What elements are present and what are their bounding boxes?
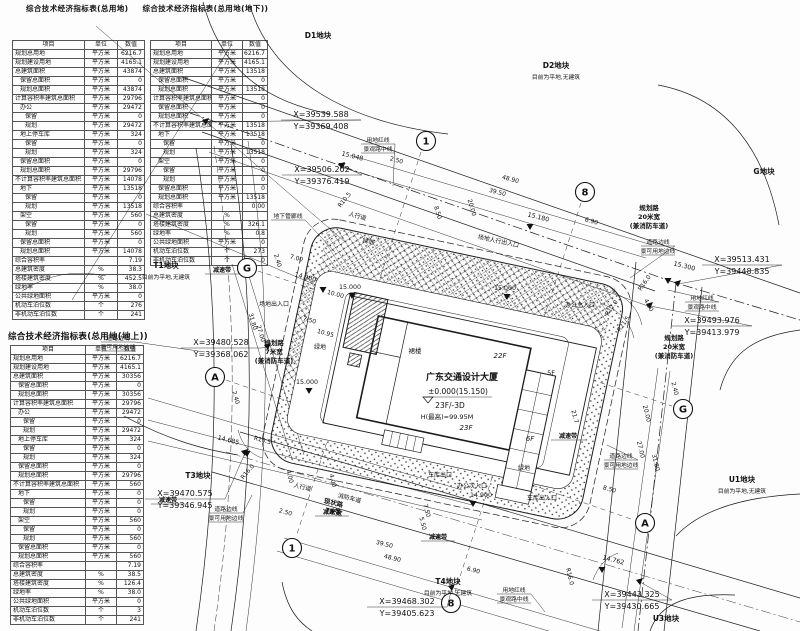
building-label: 广东交通设计大厦 <box>426 371 499 383</box>
table-row: 不计算容积率建筑总面积平方米13518 <box>151 122 268 131</box>
callout-label: 道路边线 <box>214 505 237 513</box>
plan-label: 绿地 <box>518 464 530 472</box>
table-cell: 平方米 <box>212 140 243 149</box>
table-row: 总建筑密度%38.5 <box>11 571 144 580</box>
table-row: 绿地率%38.0 <box>11 589 144 598</box>
table-cell <box>85 257 118 266</box>
table-cell: 452.5 <box>118 275 145 284</box>
table-cell: 38.3 <box>118 266 145 275</box>
axis-label: 8 <box>582 188 589 199</box>
table-row: 规划总面积平方米13518 <box>151 86 268 95</box>
callout-label: 用地红线 <box>502 586 525 594</box>
coordinate-x: X=39470.575 <box>157 489 212 498</box>
table-cell: 324 <box>118 149 145 158</box>
table-row: 非机动车泊位数个241 <box>11 616 144 625</box>
table-cell: 规划总用地 <box>151 50 212 59</box>
dimension-label: 2.50 <box>389 155 404 165</box>
table-cell: 平方米 <box>86 553 117 562</box>
axis-label: A <box>211 373 219 384</box>
table-row: 公共绿地面积平方米0 <box>11 598 144 607</box>
coord-leader <box>181 347 268 348</box>
table-row: 地上停车库平方米324 <box>13 131 145 140</box>
dimension-label: 27.00 <box>635 440 646 459</box>
table-cell: 14078 <box>118 248 145 257</box>
dimension-label: 20.00 <box>466 198 478 217</box>
table-cell: 平方米 <box>85 239 118 248</box>
dimension-label: 7.00 <box>289 253 304 263</box>
table-cell: 平方米 <box>85 104 118 113</box>
table-cell: % <box>212 230 243 239</box>
table-row: 塔楼建筑密度%326.1 <box>151 221 268 230</box>
table-cell: 0 <box>117 508 144 517</box>
table-cell: % <box>86 571 117 580</box>
table-cell: 机动车泊位数 <box>13 302 85 311</box>
table-row: 架空平方米560 <box>13 212 145 221</box>
elevation-label: 14.900 <box>294 271 317 283</box>
column-header: 数值 <box>117 346 144 355</box>
table-cell: 4165.1 <box>118 59 145 68</box>
block-label: U3地块 <box>653 613 680 623</box>
table-cell: 办公 <box>13 104 85 113</box>
table-cell: 276 <box>118 302 145 311</box>
table-cell: 个 <box>85 302 118 311</box>
table-cell: 保留 <box>13 194 85 203</box>
table-cell: 规划总面积 <box>11 391 86 400</box>
dimension-label: 2.50 <box>278 507 293 517</box>
dimension-label: 48.90 <box>383 553 402 564</box>
table-cell: 0 <box>117 418 144 427</box>
table-row: 规划总面积平方米29796 <box>13 167 145 176</box>
table-cell: 平方米 <box>212 50 243 59</box>
table-cell: 平方米 <box>86 463 117 472</box>
table-cell: 规划 <box>151 149 212 158</box>
parcel-outline <box>266 223 627 524</box>
table-cell: 保留总面积 <box>151 77 212 86</box>
plan-label: 绿地 <box>362 236 376 247</box>
table-cell: 综合容积率 <box>11 562 86 571</box>
garage-ramp-2 <box>495 484 531 504</box>
table-cell: 平方米 <box>212 185 243 194</box>
table-cell: 规划 <box>13 203 85 212</box>
dimension-label: 39.50 <box>375 539 394 550</box>
column-header: 单位 <box>85 41 118 50</box>
table-cell: 平方米 <box>85 131 118 140</box>
dimension-label: 4.00 <box>284 469 294 484</box>
block-label: U1地块 <box>729 474 756 484</box>
block-sublabel: 目前为平地,无建筑 <box>532 73 580 81</box>
callout-leader <box>607 445 638 460</box>
table-cell: 个 <box>86 607 117 616</box>
table-row: 绿地率%38.0 <box>13 284 145 293</box>
table-cell: 29796 <box>118 167 145 176</box>
tower-hatch-block <box>343 293 388 355</box>
table-cell: 地上停车库 <box>13 131 85 140</box>
dimension-label: R12.0 <box>604 299 620 318</box>
table-cell: 29472 <box>118 104 145 113</box>
table-cell: 38.5 <box>117 571 144 580</box>
axis-bubble <box>283 539 302 558</box>
dimension-label: 39.50 <box>488 187 507 198</box>
table-cell: 平方米 <box>85 122 118 131</box>
garage-ramp <box>382 430 424 453</box>
table-cell: 保留总面积 <box>13 158 85 167</box>
table-cell: 560 <box>118 212 145 221</box>
callout-leader <box>393 144 395 186</box>
table-cell: 平方米 <box>85 140 118 149</box>
title-total-land: 综合技术经济指标表(总用地) <box>26 4 128 13</box>
elevation-label: 14.900 <box>470 492 492 499</box>
table-cell: 规划 <box>13 149 85 158</box>
table-row: 保留平方米0 <box>13 140 145 149</box>
table-cell: 241 <box>118 311 145 320</box>
table-cell: 平方米 <box>212 149 243 158</box>
table-cell: 地下 <box>151 131 212 140</box>
table-row: 规划建设用地平方米4165.1 <box>11 364 144 373</box>
table-row: 保留平方米0 <box>151 140 268 149</box>
table-cell: 29472 <box>117 409 144 418</box>
table-cell: 29472 <box>118 122 145 131</box>
table-cell: 总建筑面积 <box>151 68 212 77</box>
dimension-label: R10.5 <box>253 435 272 446</box>
coord-marker <box>241 449 248 456</box>
table-cell: 平方米 <box>85 221 118 230</box>
table-cell: 平方米 <box>212 77 243 86</box>
table-cell: 规划总面积 <box>151 194 212 203</box>
table-cell: 规划总面积 <box>11 553 86 562</box>
column-header: 单位 <box>212 41 243 50</box>
table-cell: 0 <box>243 104 268 113</box>
table-cell: % <box>85 275 118 284</box>
building-label: 5F <box>547 369 555 377</box>
table-row: 保留总面积平方米0 <box>13 158 145 167</box>
table-cell: 非机动车泊位数 <box>151 257 212 266</box>
table-cell: 13518 <box>243 122 268 131</box>
table-cell: 平方米 <box>212 59 243 68</box>
coordinate-y: Y=39369.408 <box>293 122 349 131</box>
table-row: 规划总面积平方米13518 <box>151 194 268 203</box>
table-cell: 公共绿地面积 <box>151 239 212 248</box>
table-cell: 平方米 <box>212 68 243 77</box>
plaza-hatch <box>317 226 615 338</box>
table-cell: 29472 <box>117 427 144 436</box>
coord-leader <box>282 166 362 175</box>
table-row: 不计算容积率建筑总面积平方米14078 <box>13 176 145 185</box>
table-cell: 平方米 <box>85 68 118 77</box>
table-cell: 平方米 <box>86 355 117 364</box>
callout-leader <box>305 220 335 252</box>
table-cell: 非机动车泊位数 <box>13 311 85 320</box>
table-cell: 总建筑面积 <box>13 68 85 77</box>
dimension-label: 2.40 <box>272 253 282 268</box>
road-label: 7米宽 <box>324 505 344 518</box>
table-cell: 0 <box>118 194 145 203</box>
table-cell: 0 <box>118 221 145 230</box>
table-cell: 126.4 <box>117 580 144 589</box>
table-cell: 塔楼建筑密度 <box>11 580 86 589</box>
dimension-label: 10.00 <box>326 289 345 300</box>
table-cell: 0 <box>243 257 268 266</box>
callout-label: 用地红线 <box>366 136 389 144</box>
table-cell: 平方米 <box>86 436 117 445</box>
table-cell: 规划 <box>11 454 86 463</box>
table-cell: 平方米 <box>85 59 118 68</box>
coord-marker <box>646 302 653 309</box>
table-cell: 560 <box>117 535 144 544</box>
plan-label: 车库出口 <box>428 471 452 479</box>
table-row: 规划总面积平方米14078 <box>13 248 145 257</box>
table-cell: 地下 <box>11 490 86 499</box>
table-cell: 平方米 <box>212 167 243 176</box>
table-cell: 平方米 <box>86 481 117 490</box>
table-cell: 平方米 <box>85 95 118 104</box>
dimension-label: R16.0 <box>637 274 653 293</box>
table-cell: 0 <box>117 445 144 454</box>
elevation-marker <box>527 224 534 230</box>
table-cell: 计算容积率建筑总面积 <box>13 95 85 104</box>
table-cell: 0 <box>243 113 268 122</box>
column-header: 项目 <box>151 41 212 50</box>
table-row: 规划建设用地平方米4165.1 <box>13 59 145 68</box>
table-cell: 0 <box>117 463 144 472</box>
table-row: 机动车泊位数个3 <box>11 607 144 616</box>
table-row: 架空平方米0 <box>151 158 268 167</box>
table-row: 保留平方米0 <box>11 499 144 508</box>
table-row: 保留平方米0 <box>13 194 145 203</box>
ring-road-inner <box>319 291 570 469</box>
table-cell: 13518 <box>243 149 268 158</box>
elevation-label: 15.048 <box>341 150 364 162</box>
table-cell: 平方米 <box>86 364 117 373</box>
table-cell: 6216.7 <box>117 355 144 364</box>
table-cell: 324 <box>118 131 145 140</box>
block-label: G地块 <box>753 166 775 176</box>
table-cell: 平方米 <box>85 86 118 95</box>
indicator-table: 项目单位数值规划总用地平方米6216.7规划建设用地平方米4165.1总建筑面积… <box>150 40 268 266</box>
table-cell: 0 <box>243 185 268 194</box>
road-network <box>182 77 800 631</box>
road-label: (兼消防车道) <box>655 351 693 360</box>
table-cell: 0 <box>117 544 144 553</box>
table-row: 规划总面积平方米30356 <box>11 391 144 400</box>
table-row: 总建筑面积平方米13518 <box>151 68 268 77</box>
table-cell: 保留 <box>13 140 85 149</box>
site-plan-page: 综合技术经济指标表(总用地)综合技术经济指标表(总用地(地下)) 项目单位数值规… <box>0 0 800 631</box>
table-cell: 不计算容积率建筑总面积 <box>151 122 212 131</box>
table-cell: 平方米 <box>85 158 118 167</box>
road-label: 20米宽 <box>663 342 686 351</box>
dimension-label: 7.50 <box>421 503 431 518</box>
plan-label: 消防车道 <box>337 491 362 505</box>
table-cell: 总建筑面积 <box>11 373 86 382</box>
table-cell: 计算容积率建筑总面积 <box>151 95 212 104</box>
table-cell: 个 <box>212 257 243 266</box>
elevation-marker <box>470 501 477 507</box>
column-header: 项目 <box>13 41 85 50</box>
table-cell: 规划建设用地 <box>11 364 86 373</box>
table-cell <box>212 203 243 212</box>
table-cell: 综合容积率 <box>13 257 85 266</box>
table-cell: 平方米 <box>86 526 117 535</box>
table-row: 非机动车泊位数个241 <box>13 311 145 320</box>
callout-leader <box>531 594 545 612</box>
table-row: 保留平方米0 <box>11 526 144 535</box>
table-cell: 6216.7 <box>243 50 268 59</box>
callout-label: 景观路中线 <box>364 145 393 153</box>
table-cell: 7.19 <box>118 257 145 266</box>
block-sublabel: 目前为平地,无建筑 <box>718 487 766 495</box>
table-cell: 平方米 <box>86 427 117 436</box>
coordinate-y: Y=39413.979 <box>684 328 740 337</box>
table-cell: 平方米 <box>85 113 118 122</box>
table-row: 保留总面积平方米0 <box>151 77 268 86</box>
indicator-table: 项目单位数值规划总用地平方米6216.7规划建设用地平方米4165.1总建筑面积… <box>10 345 144 625</box>
table-cell: 0 <box>117 526 144 535</box>
coordinate-x: X=39468.302 <box>379 597 434 606</box>
table-row: 总建筑面积平方米43874 <box>13 68 145 77</box>
table-cell: 塔楼建筑密度 <box>151 221 212 230</box>
building-label: 裙楼 <box>409 346 423 355</box>
axis-bubble <box>576 183 595 202</box>
elevation-label: 15.300 <box>673 260 696 272</box>
table-cell: 0.8 <box>243 230 268 239</box>
coord-marker <box>264 343 271 350</box>
table-cell: 总建筑密度 <box>13 266 85 275</box>
table-row: 规划总面积平方米29796 <box>11 472 144 481</box>
table-cell: 平方米 <box>212 176 243 185</box>
elevation-marker <box>244 451 251 457</box>
table-cell: 个 <box>86 616 117 625</box>
table-cell: 平方米 <box>212 194 243 203</box>
table-cell: 规划 <box>13 230 85 239</box>
table-cell: 平方米 <box>86 400 117 409</box>
block-label: T4地块 <box>435 576 461 586</box>
table-row: 办公平方米29472 <box>11 409 144 418</box>
table-cell: 保留总面积 <box>11 463 86 472</box>
indicator-table-total: 项目单位数值规划总用地平方米6216.7规划建设用地平方米4165.1总建筑面积… <box>12 40 145 320</box>
west-hatch <box>284 270 350 387</box>
plan-label: 车库出入口 <box>527 494 557 502</box>
table-cell: 绿地率 <box>151 230 212 239</box>
building-label: 23F/-3D <box>435 401 465 410</box>
table-row: 规划平方米13518 <box>151 149 268 158</box>
table-cell: 公共绿地面积 <box>13 293 85 302</box>
coordinate-y: Y=39376.419 <box>294 177 350 186</box>
table-row: 规划平方米0 <box>151 176 268 185</box>
table-cell: 地下 <box>13 185 85 194</box>
table-cell: 13518 <box>243 68 268 77</box>
table-cell: 规划 <box>11 508 86 517</box>
table-cell: 保留 <box>151 167 212 176</box>
table-row: 机动车泊位数个273 <box>151 248 268 257</box>
table-cell: 平方米 <box>85 212 118 221</box>
table-cell: 30356 <box>117 391 144 400</box>
table-row: 综合容积率7.19 <box>11 562 144 571</box>
table-cell: 规划 <box>13 122 85 131</box>
plan-label: 人行道 <box>348 210 367 222</box>
table-cell: 平方米 <box>212 158 243 167</box>
dimension-label: 8.50 <box>432 205 442 220</box>
table-cell: 平方米 <box>86 598 117 607</box>
elevation-marker <box>339 163 346 169</box>
table-cell: 平方米 <box>86 544 117 553</box>
table-row: 架空平方米560 <box>11 517 144 526</box>
building-label: ±0.000(15.150) <box>428 387 488 396</box>
elevation-label: 15.000 <box>494 285 516 292</box>
callout-label: 减速带 <box>159 496 177 504</box>
table-cell: 非机动车泊位数 <box>11 616 86 625</box>
table-cell: 326.1 <box>243 221 268 230</box>
road-label: 现状路 <box>323 496 345 509</box>
table-cell: 平方米 <box>85 293 118 302</box>
table-cell: 个 <box>85 311 118 320</box>
block-sublabel: 目前为平地,无建筑 <box>424 589 472 597</box>
callout-label: 景观路中线 <box>500 595 529 603</box>
road-label: 规划路 <box>664 333 684 342</box>
table-cell: 0 <box>118 158 145 167</box>
table-cell: 保留总面积 <box>151 104 212 113</box>
callout-label: 景可用地边线 <box>209 514 244 522</box>
table-cell: 保留 <box>13 221 85 230</box>
table-cell: 平方米 <box>85 77 118 86</box>
table-cell: 0 <box>243 95 268 104</box>
table-cell: 平方米 <box>85 149 118 158</box>
column-header: 项目 <box>11 346 86 355</box>
table-cell: 保留 <box>13 113 85 122</box>
axis-label: A <box>641 519 649 530</box>
table-row: 规划总用地平方米6216.7 <box>11 355 144 364</box>
table-cell: 平方米 <box>85 194 118 203</box>
building-label: 22F <box>494 352 508 360</box>
table-row: 规划总用地平方米6216.7 <box>13 50 145 59</box>
column-header: 数值 <box>243 41 268 50</box>
coord-marker <box>674 280 681 287</box>
table-cell: 架空 <box>13 212 85 221</box>
table-cell <box>86 562 117 571</box>
table-cell: % <box>85 266 118 275</box>
table-row: 规划平方米0 <box>11 508 144 517</box>
table-cell: 13518 <box>243 131 268 140</box>
table-row: 总建筑密度% <box>151 212 268 221</box>
table-row: 综合容积率7.19 <box>13 257 145 266</box>
main-tower <box>357 316 531 450</box>
table-cell: 38.0 <box>117 589 144 598</box>
table-cell: 0.00 <box>243 203 268 212</box>
table-cell: 规划总面积 <box>13 86 85 95</box>
table-row: 地上停车库平方米324 <box>11 436 144 445</box>
table-cell: 平方米 <box>212 239 243 248</box>
elevation-label: 15.180 <box>527 211 550 223</box>
core-block <box>348 353 362 367</box>
table-row: 保留平方米0 <box>11 445 144 454</box>
table-cell: 平方米 <box>85 167 118 176</box>
coordinate-y: Y=39405.623 <box>379 609 435 618</box>
table-cell: 平方米 <box>86 472 117 481</box>
table-row: 保留总面积平方米0 <box>13 77 145 86</box>
table-cell: 560 <box>117 553 144 562</box>
table-row: 规划建设用地平方米4165.1 <box>151 59 268 68</box>
table-row: 公共绿地面积平方米0 <box>13 293 145 302</box>
table-cell: 4165.1 <box>117 364 144 373</box>
dimension-label: 31.80 <box>247 312 259 331</box>
table-cell: 规划总面积 <box>11 472 86 481</box>
elevation-label: 14.685 <box>217 434 240 446</box>
page-title: 综合技术经济指标表(总用地)综合技术经济指标表(总用地(地下)) <box>26 3 268 14</box>
table-cell: 平方米 <box>86 535 117 544</box>
table-cell: 30356 <box>117 373 144 382</box>
table-cell: 6216.7 <box>118 50 145 59</box>
table-cell: 保留 <box>11 499 86 508</box>
table-cell: 平方米 <box>85 50 118 59</box>
